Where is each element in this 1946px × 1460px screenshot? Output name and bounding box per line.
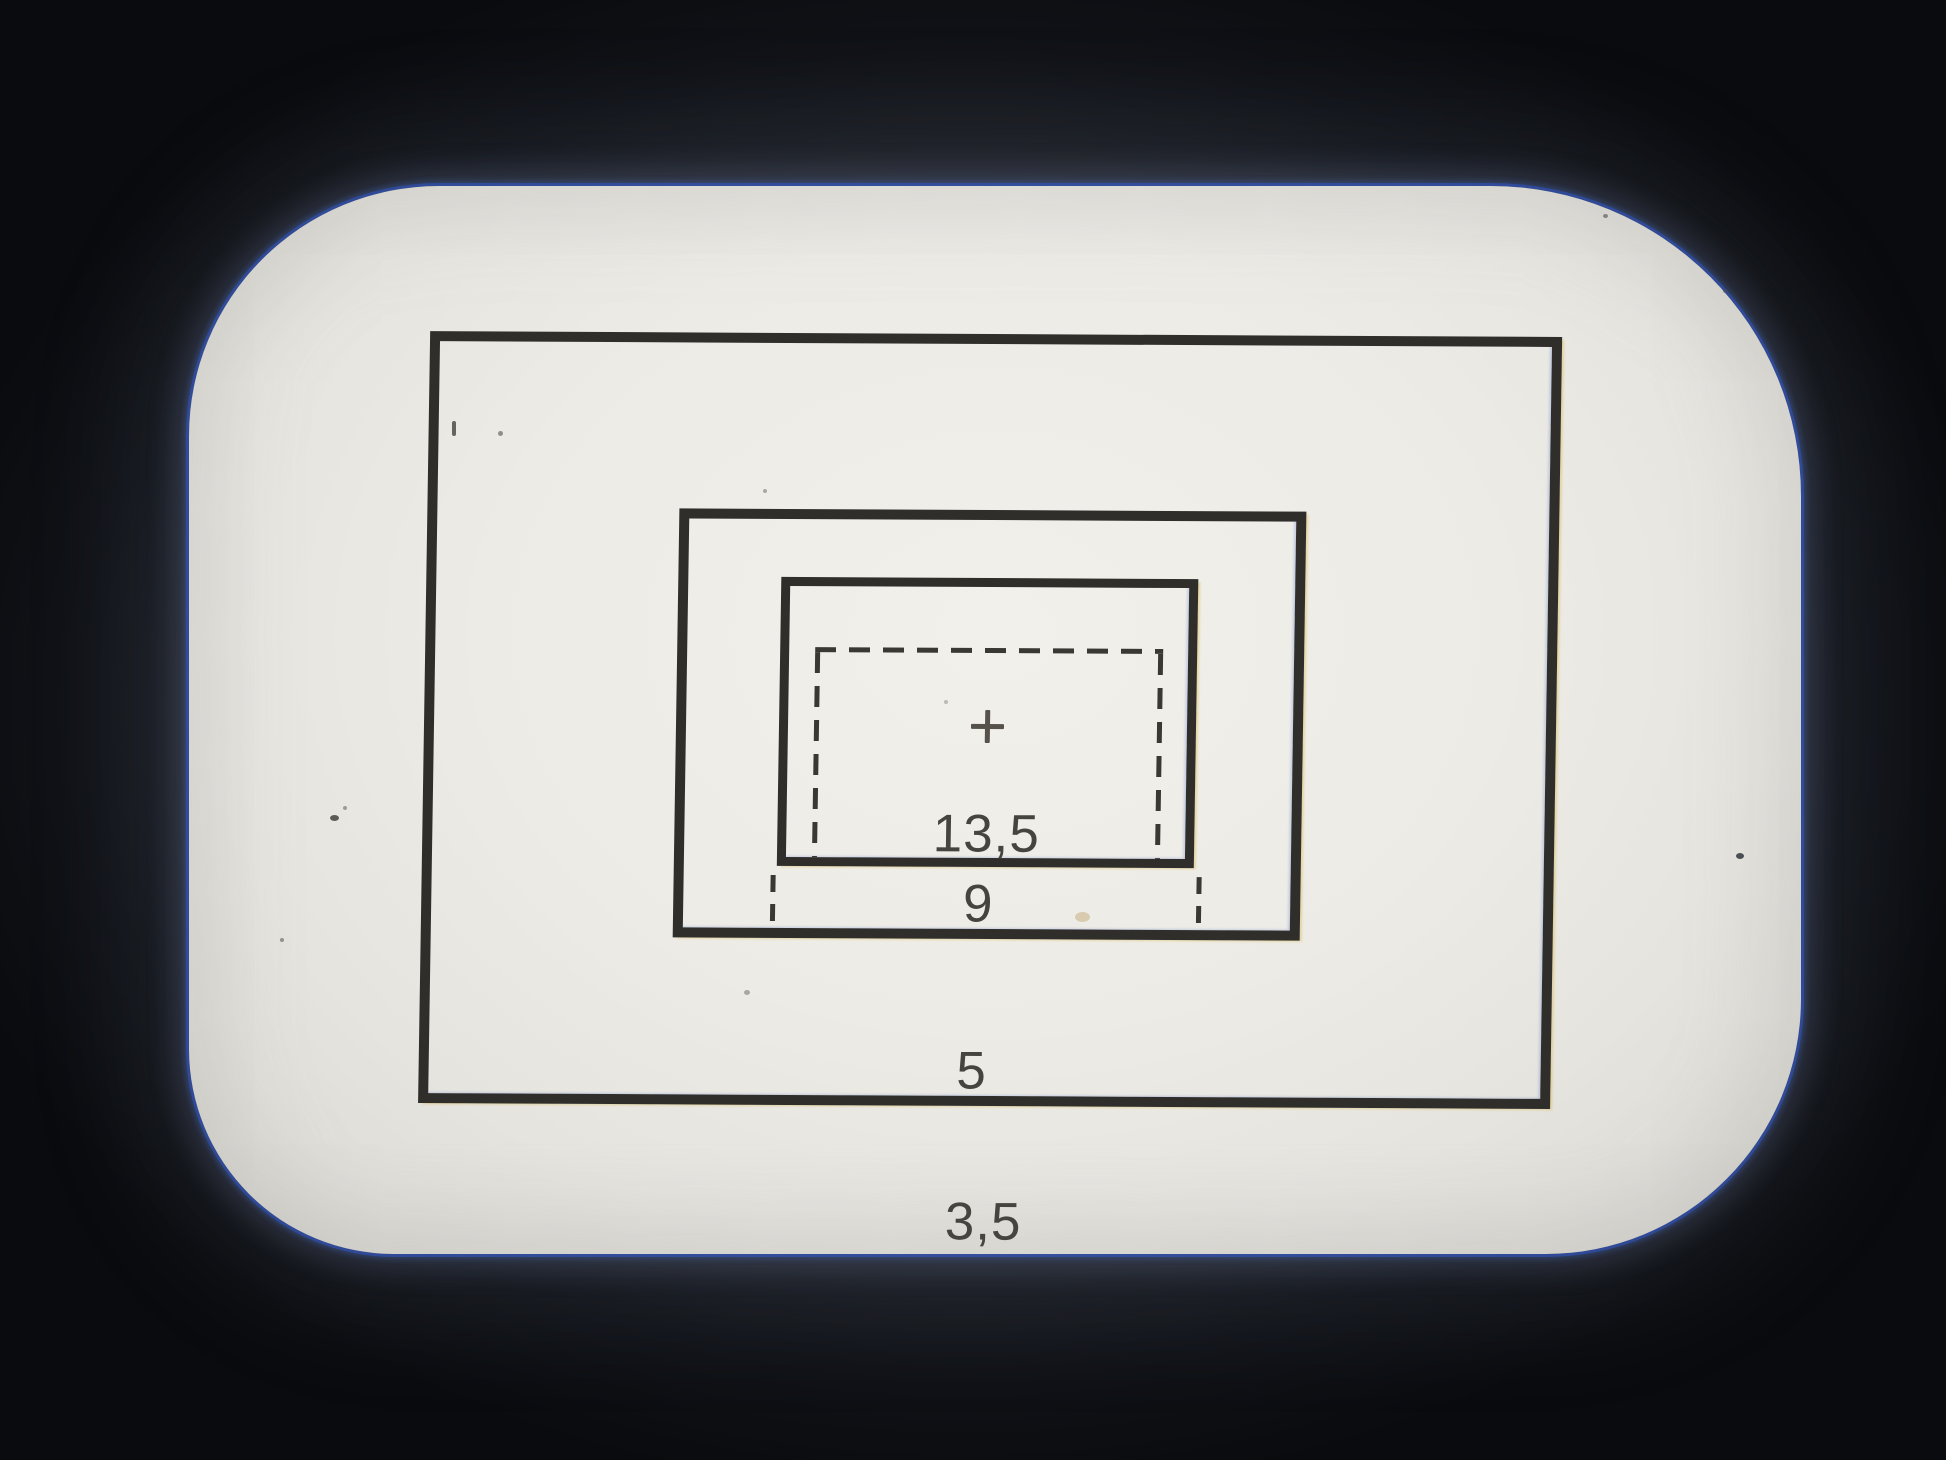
dashed-extension-right	[1196, 877, 1202, 935]
frame-label-9: 9	[963, 877, 994, 930]
dust-speck	[498, 431, 503, 436]
dust-speck	[944, 700, 948, 704]
dust-speck	[763, 489, 767, 493]
frame-label-3-5: 3,5	[944, 1195, 1022, 1248]
dust-speck	[343, 806, 347, 810]
dust-speck	[1736, 853, 1744, 859]
dust-speck	[452, 421, 456, 436]
frame-reticle: 13,5 9 5 3,5	[0, 0, 1946, 1460]
center-crosshair-icon	[985, 710, 991, 743]
dust-speck	[744, 990, 750, 995]
dust-speck	[1603, 214, 1608, 218]
dust-speck	[330, 815, 339, 821]
frame-label-13-5: 13,5	[932, 807, 1040, 861]
frame-label-5: 5	[956, 1044, 987, 1097]
dust-speck	[1075, 912, 1090, 922]
dashed-extension-left	[770, 875, 776, 933]
dust-speck	[280, 938, 284, 942]
dust-speck	[1723, 289, 1728, 293]
viewfinder-photo: 13,5 9 5 3,5	[0, 0, 1946, 1460]
